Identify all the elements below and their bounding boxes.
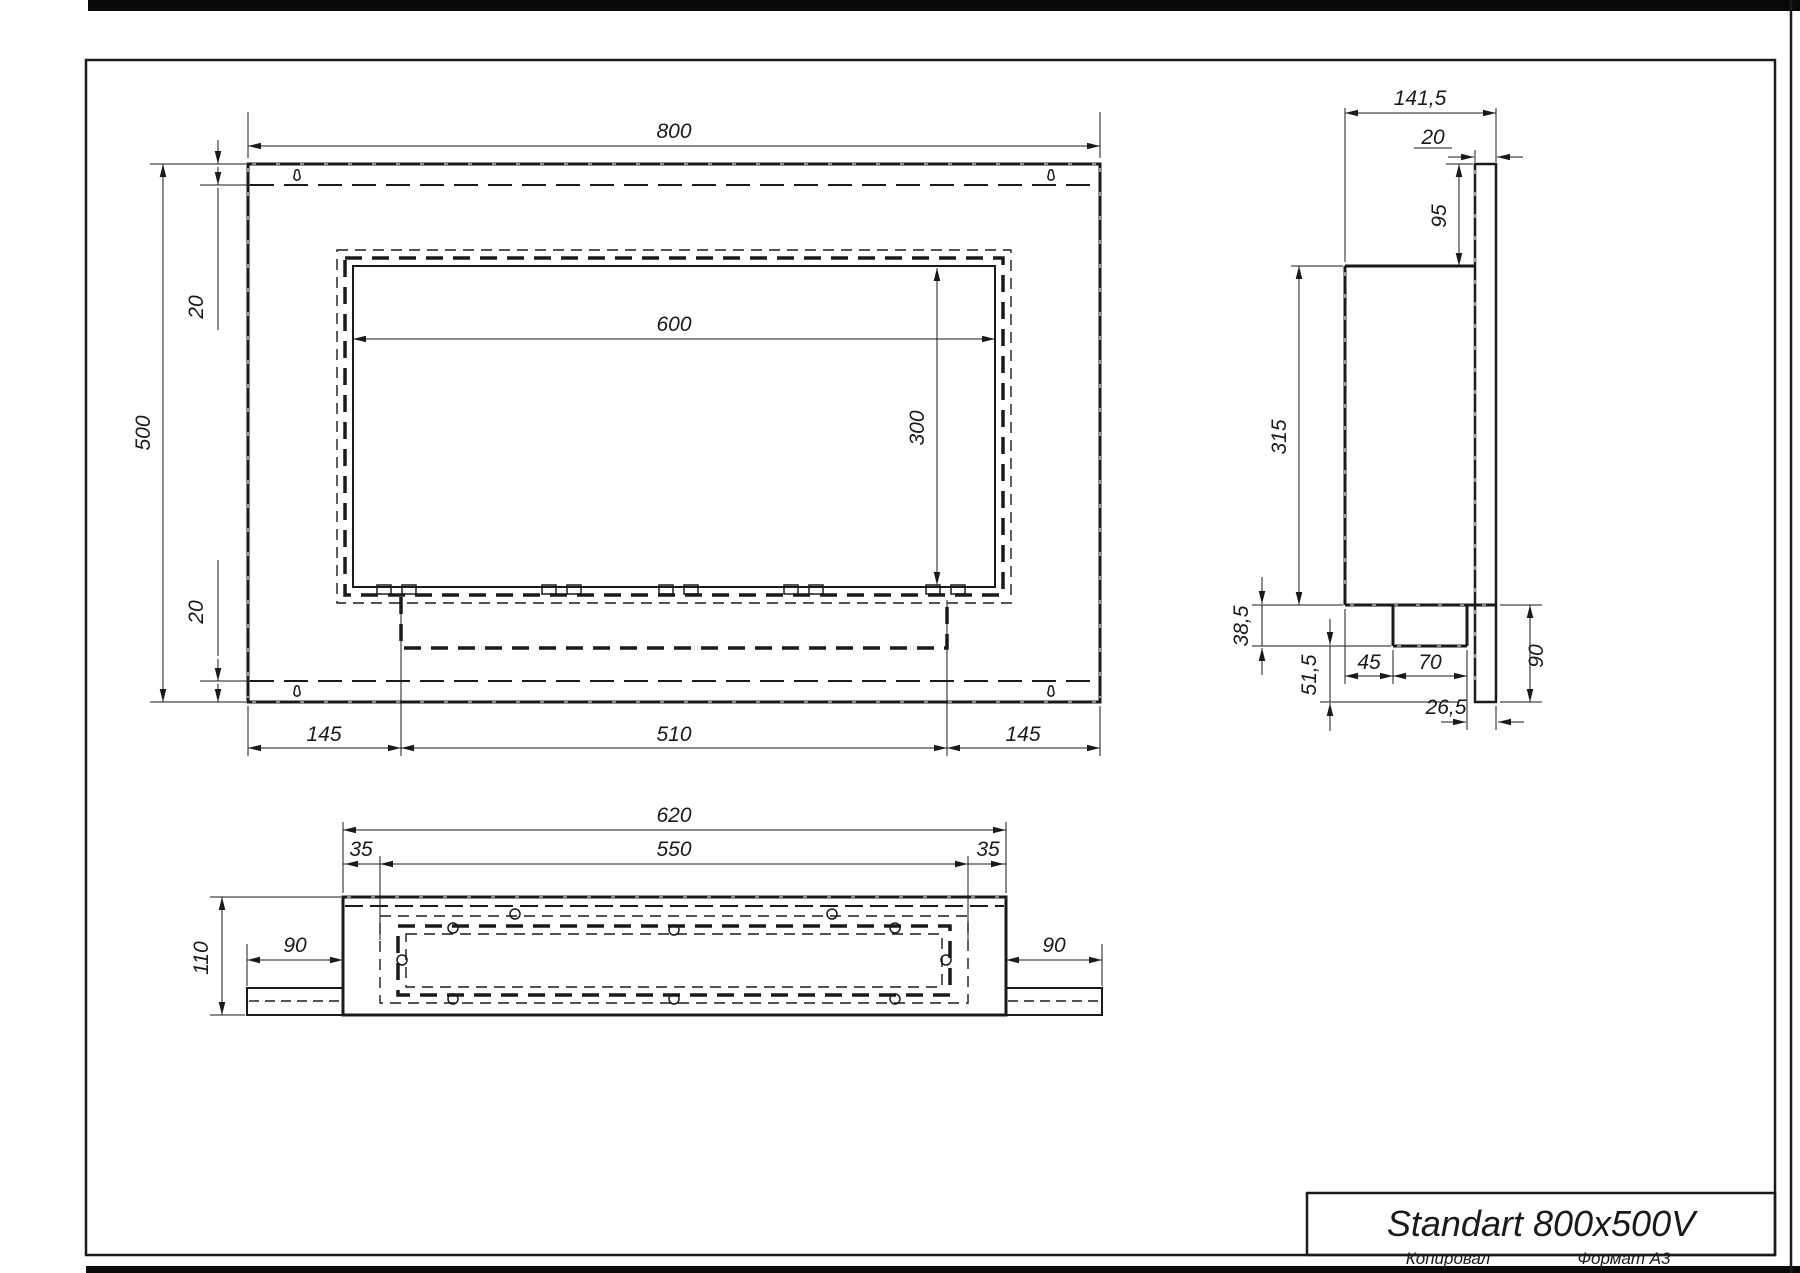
bottom-recess-inner-hidden [406,934,942,987]
dim-side-front-gap: 45 [1357,651,1381,674]
dim-side-depth: 141,5 [1394,87,1447,110]
dim-bottom-inner-width: 550 [656,838,691,861]
drawing-title: Standart 800x500V [1387,1203,1698,1244]
footer-format-label: Формат А3 [1577,1249,1671,1268]
dim-bottom-right-inset: 35 [976,838,1000,861]
dim-side-under-box: 38,5 [1230,605,1253,646]
side-wall-plate [1475,164,1496,702]
footer-copied-label: Копировал [1406,1249,1491,1268]
drawing-sheet: 800 500 20 20 600 300 145 510 145 [0,0,1800,1273]
keyhole-slot-icon [294,170,300,180]
dim-opening-width: 600 [656,313,691,336]
bottom-view: 620 550 35 35 110 90 90 [190,804,1102,1015]
side-view: 141,5 20 95 315 38,5 51,5 45 [1230,87,1548,731]
scan-bar-top [88,0,1800,11]
keyhole-slot-icon [294,686,300,696]
dim-front-top-inset: 20 [185,295,208,320]
dim-side-lower-leg: 51,5 [1298,654,1321,695]
front-view: 800 500 20 20 600 300 145 510 145 [132,112,1100,756]
front-opening-hidden [345,258,1003,595]
dim-bottom-right-flange: 90 [1042,934,1066,957]
keyhole-slot-icon [1048,170,1054,180]
bottom-recess-hidden [398,926,950,995]
keyhole-slot-icon [1048,686,1054,696]
dim-side-top-to-box: 95 [1428,204,1451,228]
dim-side-tray-width: 70 [1418,651,1442,674]
bottom-left-flange [247,988,343,1015]
bottom-right-flange [1006,988,1102,1015]
burner-tray-hidden [401,597,947,648]
drawing-frame [86,60,1775,1255]
bottom-housing [343,897,1006,1015]
dim-bottom-depth: 110 [190,941,213,975]
dim-bottom-outer-width: 620 [656,804,691,827]
title-block: Standart 800x500V Копировал Формат А3 [1307,1193,1775,1268]
dim-front-right-margin: 145 [1005,723,1040,746]
screw-holes [397,909,951,1004]
dim-bottom-left-flange: 90 [283,934,307,957]
dim-burner-width: 510 [656,723,691,746]
dim-bottom-left-inset: 35 [349,838,373,861]
dim-side-plate-thickness: 20 [1420,126,1445,149]
scan-bar-bottom [86,1266,1800,1273]
dim-opening-height: 300 [906,410,929,445]
bottom-recess-outer-hidden [380,916,968,1003]
dim-front-height: 500 [132,415,155,450]
technical-drawing-canvas: 800 500 20 20 600 300 145 510 145 [0,0,1800,1273]
dim-front-left-margin: 145 [306,723,341,746]
dim-front-bottom-inset: 20 [185,600,208,625]
dim-front-width: 800 [656,120,691,143]
dim-side-box-height: 315 [1268,419,1291,454]
front-outer-panel [248,164,1100,702]
dim-side-lower-height: 90 [1525,644,1548,668]
dim-side-back-gap: 26,5 [1425,696,1467,719]
